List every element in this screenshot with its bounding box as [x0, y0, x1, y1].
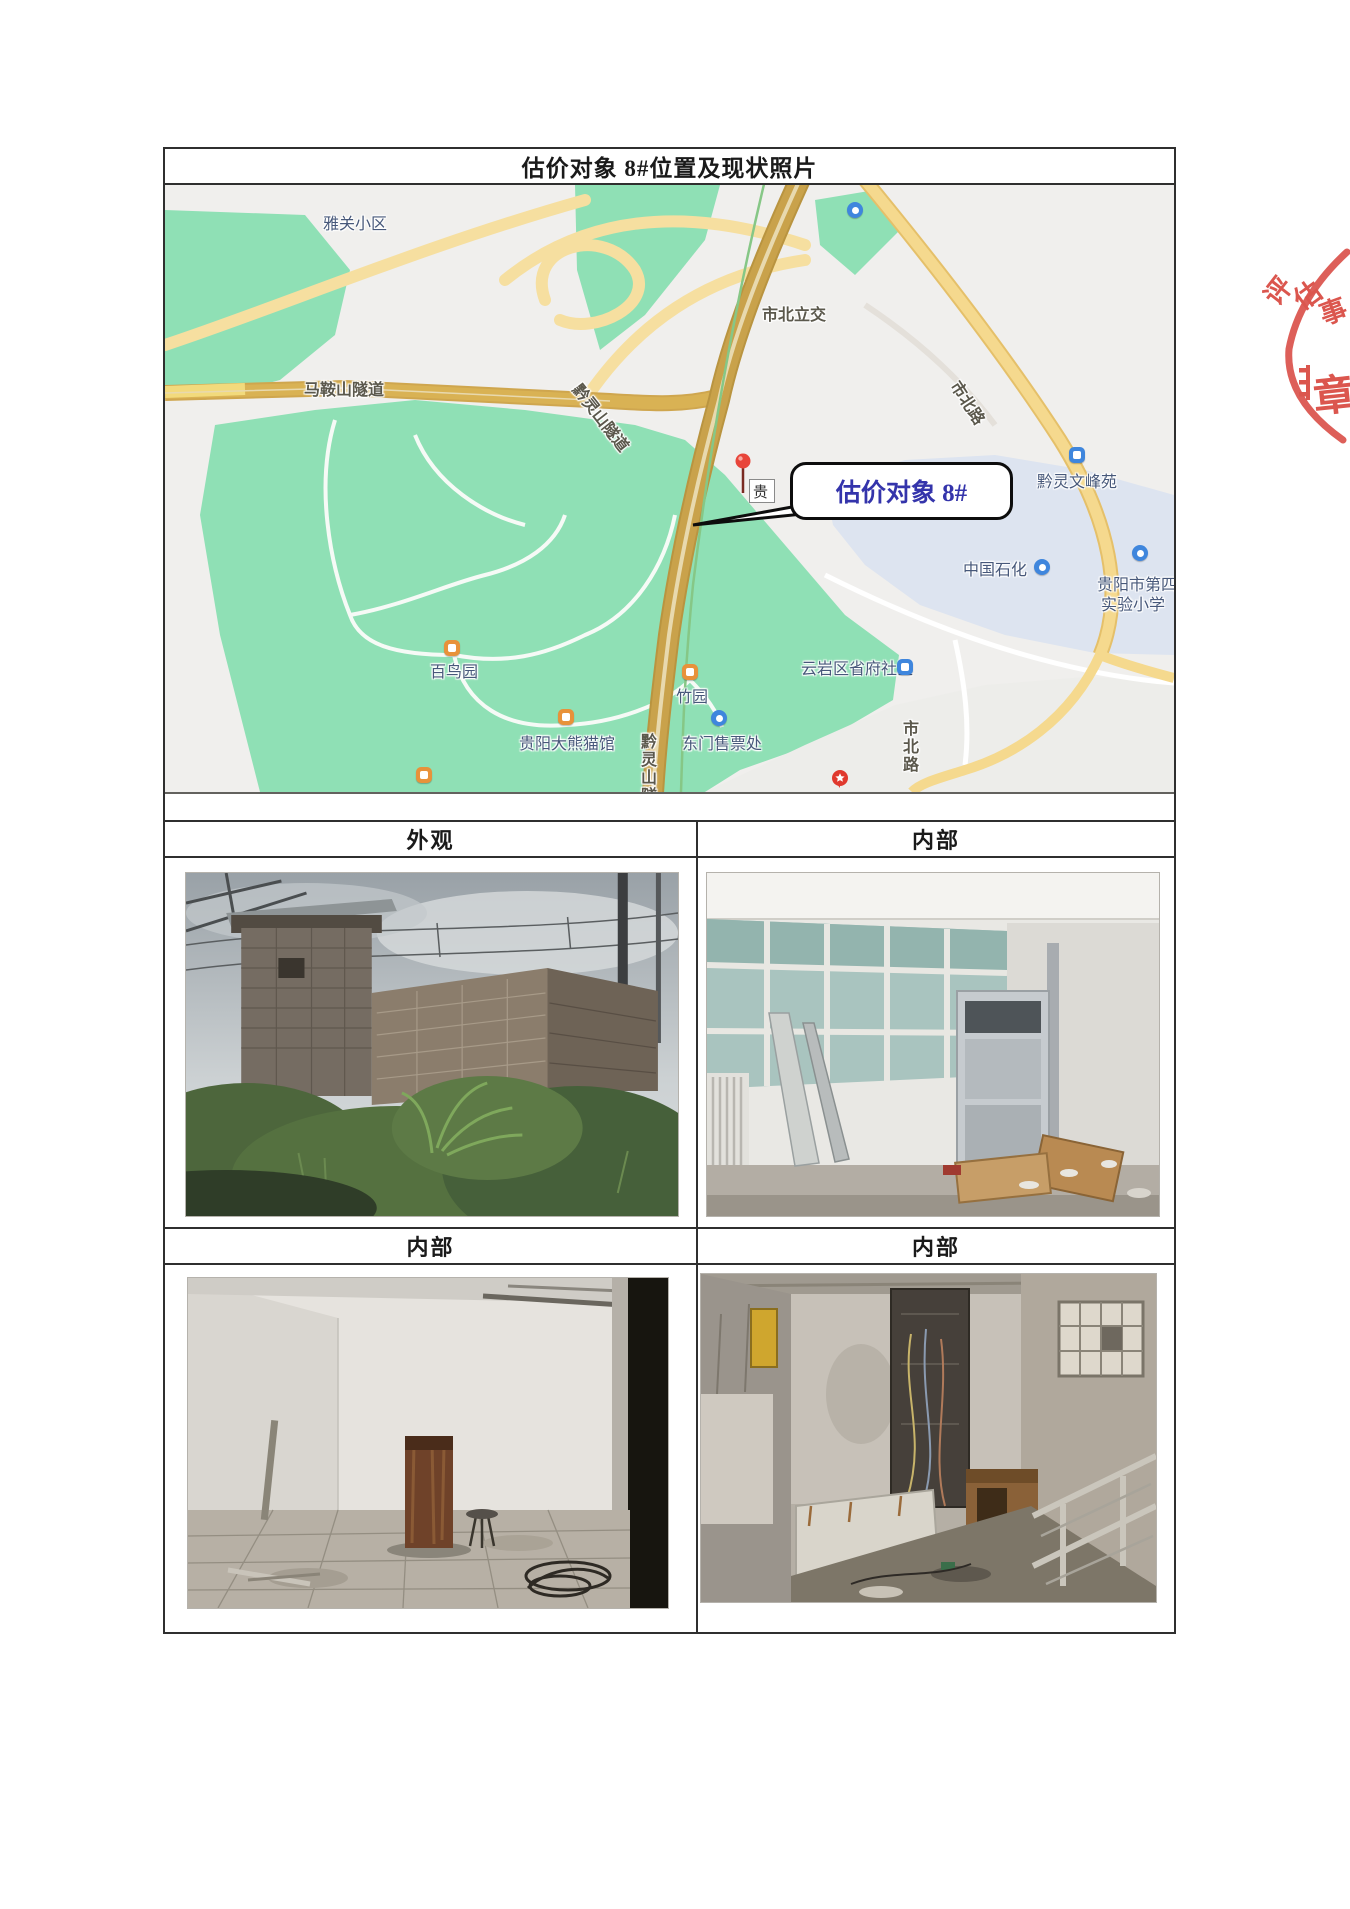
photo-interior-empty-room: [187, 1277, 669, 1609]
map-label-ticket: 东门售票处: [682, 730, 762, 754]
header-interior-1-label: 内部: [912, 823, 960, 855]
header-interior-2: 内部: [165, 1229, 696, 1263]
photo-exterior: [185, 872, 679, 1217]
map-label-shibei-interchange: 市北立交: [762, 301, 826, 325]
photo-table: 估价对象 8#位置及现状照片: [163, 147, 1176, 1634]
map-label-zhuyuan: 竹园: [676, 683, 708, 707]
stamp-bottom-char: 章: [1310, 360, 1350, 425]
pin-label-text: 贵: [753, 481, 768, 502]
map-graphic: [165, 185, 1174, 792]
page-title: 估价对象 8#位置及现状照片: [522, 149, 818, 183]
museum-icon-panda: [558, 709, 574, 725]
location-map: 雅关小区 市北立交 马鞍山隧道 黔灵山隧道 市北路 黔灵文峰苑 中国石化 贵阳市…: [165, 185, 1174, 794]
map-label-maanshan-tunnel: 马鞍山隧道: [304, 376, 384, 400]
stamp-partial-glyph: [1299, 365, 1310, 400]
photo-interior-equipment: [700, 1273, 1157, 1603]
callout-text: 估价对象 8#: [836, 473, 967, 509]
header-exterior-label: 外观: [406, 823, 454, 855]
pin-label: 贵: [749, 479, 775, 503]
subject-callout: 估价对象 8#: [790, 462, 1013, 520]
museum-icon-extra: [416, 767, 432, 783]
photo-interior-1: [706, 872, 1160, 1217]
map-label-school-line2: 实验小学: [1101, 591, 1165, 615]
header-exterior: 外观: [165, 822, 696, 856]
poi-icon-top-right: [847, 202, 863, 218]
header-interior-2-label: 内部: [406, 1230, 454, 1262]
star-badge-icon: [831, 770, 849, 788]
divider: [165, 856, 1174, 858]
column-divider: [696, 820, 698, 1632]
housing-icon: [1069, 447, 1085, 463]
map-label-sinopec: 中国石化: [963, 556, 1027, 580]
gas-station-icon: [1034, 559, 1050, 575]
community-icon: [897, 659, 913, 675]
map-label-yaguan: 雅关小区: [323, 210, 387, 234]
map-label-bainiao: 百鸟园: [430, 658, 478, 682]
document-page: 估价对象 8#位置及现状照片: [0, 0, 1350, 1909]
school-icon: [1132, 545, 1148, 561]
map-label-qianlingshan-partial: 黔灵山隧: [635, 733, 659, 794]
header-interior-3-label: 内部: [912, 1230, 960, 1262]
museum-icon-zhuyuan: [682, 664, 698, 680]
map-label-wenfeng: 黔灵文峰苑: [1037, 468, 1117, 492]
header-interior-3: 内部: [698, 1229, 1174, 1263]
official-seal-stamp: 评 估 事 章: [1255, 244, 1350, 449]
map-label-panda: 贵阳大熊猫馆: [519, 730, 615, 754]
map-label-shibei-road-bottom: 市北路: [897, 720, 921, 774]
ticket-office-icon: [711, 710, 727, 726]
table-title: 估价对象 8#位置及现状照片: [165, 149, 1174, 183]
location-pin-icon: [734, 453, 752, 495]
header-interior-1: 内部: [698, 822, 1174, 856]
museum-icon-bainiao: [444, 640, 460, 656]
divider: [165, 1263, 1174, 1265]
